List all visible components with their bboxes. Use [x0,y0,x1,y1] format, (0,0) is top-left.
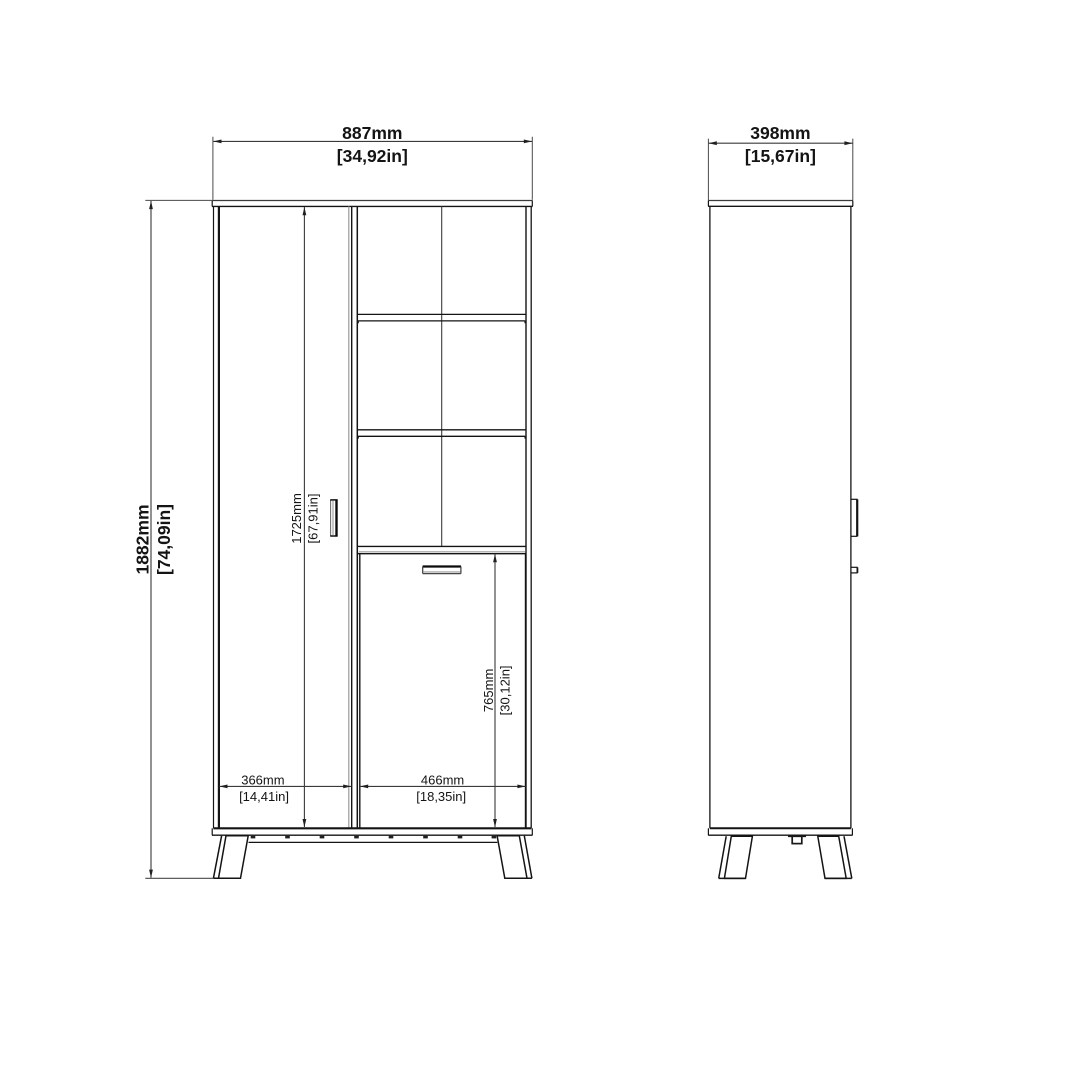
svg-text:[30,12in]: [30,12in] [497,665,512,715]
svg-text:[67,91in]: [67,91in] [305,494,320,544]
svg-text:366mm: 366mm [241,773,284,788]
svg-text:[74,09in]: [74,09in] [154,504,174,575]
svg-text:[34,92in]: [34,92in] [337,146,408,166]
svg-text:[14,41in]: [14,41in] [239,789,289,804]
svg-text:1882mm: 1882mm [132,504,152,574]
svg-text:1725mm: 1725mm [289,493,304,544]
svg-text:[18,35in]: [18,35in] [416,789,466,804]
svg-text:887mm: 887mm [342,123,402,143]
svg-text:466mm: 466mm [421,773,464,788]
svg-text:[15,67in]: [15,67in] [745,146,816,166]
svg-text:765mm: 765mm [481,669,496,712]
svg-text:398mm: 398mm [750,123,810,143]
